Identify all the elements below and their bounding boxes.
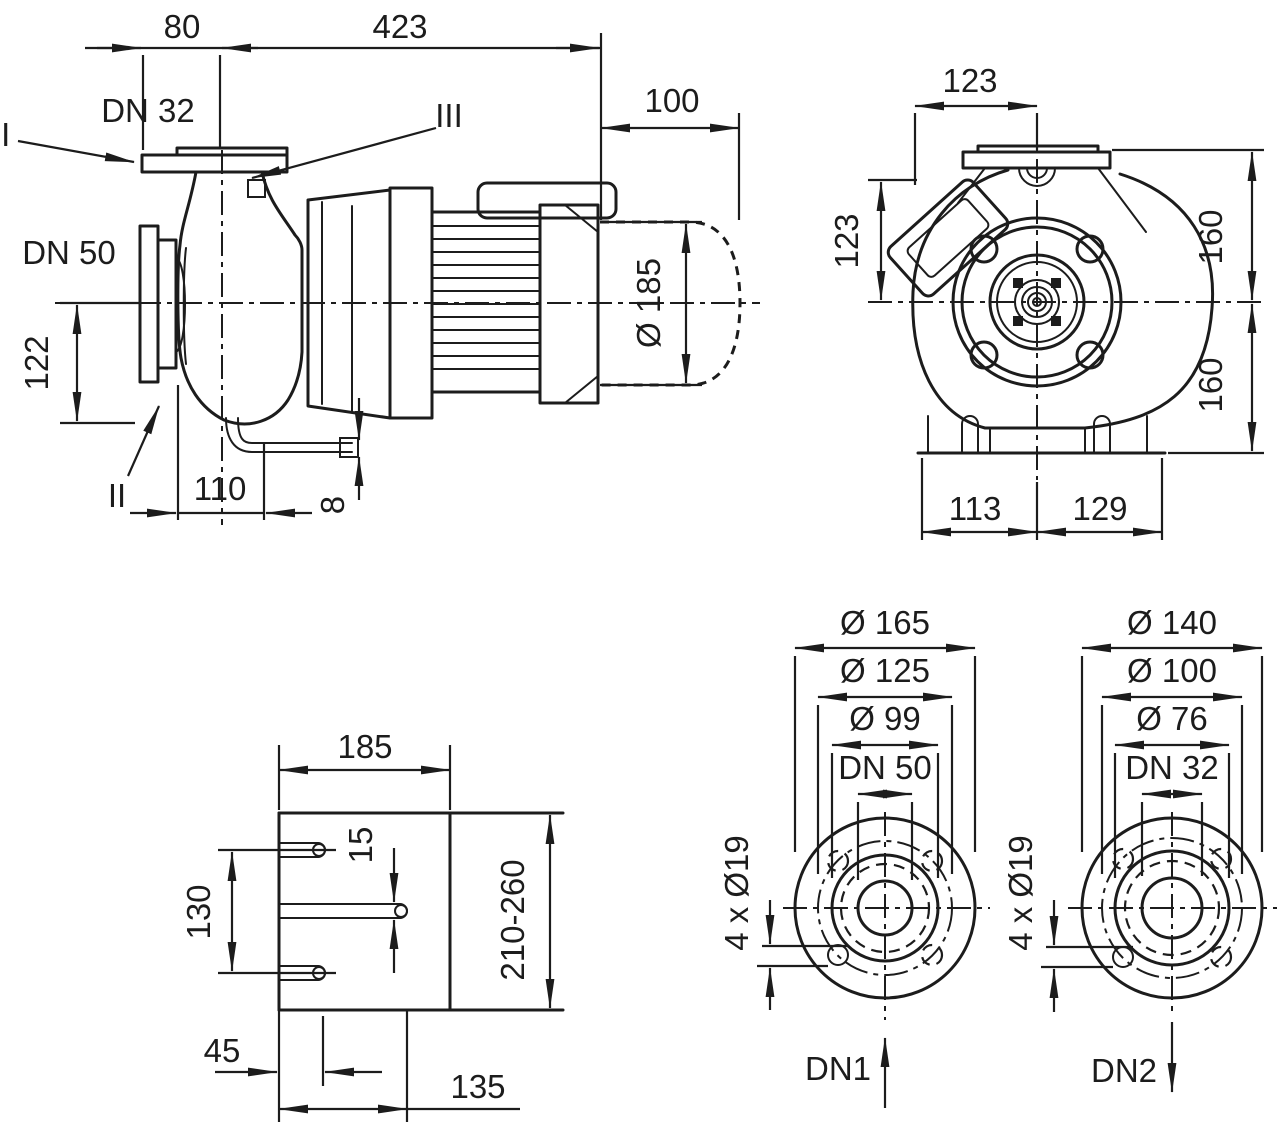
base-plate-view: 185 130 15 210-260 45 135 bbox=[180, 728, 563, 1122]
dim-135: 135 bbox=[450, 1068, 505, 1105]
label-dn1: DN1 bbox=[805, 1050, 871, 1087]
drawing-canvas: 80 423 100 Ø 185 122 110 8 DN 32 DN 50 I… bbox=[0, 0, 1280, 1125]
dim-8: 8 bbox=[314, 496, 351, 514]
key-square-bl bbox=[1013, 316, 1023, 326]
dim-bore-dn32: DN 32 bbox=[1125, 749, 1219, 786]
foot-slot-right bbox=[1094, 416, 1110, 453]
section-marker-bottom: II bbox=[108, 477, 126, 514]
dim-100: 100 bbox=[644, 82, 699, 119]
rear-chamfer-bottom bbox=[565, 376, 598, 403]
vent-plug bbox=[248, 180, 265, 197]
marker-mid-leader bbox=[252, 128, 436, 178]
dim-bore-dn50: DN 50 bbox=[838, 749, 932, 786]
dim-123-width: 123 bbox=[942, 62, 997, 99]
dim-dia-76: Ø 76 bbox=[1136, 700, 1208, 737]
dim-45: 45 bbox=[204, 1032, 241, 1069]
dim-210-260: 210-260 bbox=[494, 859, 531, 980]
flange-view-dn2: Ø 140 Ø 100 Ø 76 DN 32 4 x Ø19 DN2 bbox=[1002, 604, 1277, 1092]
dim-15: 15 bbox=[342, 827, 379, 864]
label-dn2: DN2 bbox=[1091, 1052, 1157, 1089]
front-volute-outline bbox=[913, 170, 1213, 428]
dim-80: 80 bbox=[164, 8, 201, 45]
section-marker-mid: III bbox=[435, 97, 463, 134]
dim-dia-100: Ø 100 bbox=[1127, 652, 1217, 689]
key-square-tr bbox=[1051, 278, 1061, 288]
dim-160-top: 160 bbox=[1192, 209, 1229, 264]
motor-fins bbox=[433, 226, 539, 369]
key-square-br bbox=[1051, 316, 1061, 326]
dim-185: 185 bbox=[337, 728, 392, 765]
dim-holes-dn1: 4 x Ø19 bbox=[718, 835, 755, 951]
marker-left-leader bbox=[18, 141, 134, 162]
drain-fitting bbox=[340, 438, 358, 457]
flange-view-dn1: Ø 165 Ø 125 Ø 99 DN 50 4 x Ø19 DN1 bbox=[718, 604, 990, 1108]
marker-bottom-leader bbox=[128, 406, 159, 476]
pump-dimensional-drawing: 80 423 100 Ø 185 122 110 8 DN 32 DN 50 I… bbox=[0, 0, 1280, 1125]
key-square-tl bbox=[1013, 278, 1023, 288]
dim-130: 130 bbox=[180, 884, 217, 939]
section-marker-left: II bbox=[0, 116, 10, 153]
dim-dia-140: Ø 140 bbox=[1127, 604, 1217, 641]
dim-123-height: 123 bbox=[828, 213, 865, 268]
dim-holes-dn2: 4 x Ø19 bbox=[1002, 835, 1039, 951]
side-view: 80 423 100 Ø 185 122 110 8 DN 32 DN 50 I… bbox=[0, 8, 760, 525]
dim-122: 122 bbox=[18, 335, 55, 390]
dim-dia-99: Ø 99 bbox=[849, 700, 921, 737]
dim-129: 129 bbox=[1072, 490, 1127, 527]
dim-160-bottom: 160 bbox=[1192, 357, 1229, 412]
discharge-flange bbox=[142, 155, 287, 172]
label-dn50: DN 50 bbox=[22, 234, 116, 271]
dim-113: 113 bbox=[949, 490, 1002, 527]
dim-110: 110 bbox=[194, 470, 247, 507]
volute-casing bbox=[178, 172, 302, 424]
dim-dia-185: Ø 185 bbox=[630, 258, 667, 348]
front-view: 123 123 160 160 113 129 bbox=[828, 62, 1264, 540]
label-dn32: DN 32 bbox=[101, 92, 195, 129]
dim-dia-125: Ø 125 bbox=[840, 652, 930, 689]
strut-right bbox=[1098, 168, 1146, 232]
dim-dia-165: Ø 165 bbox=[840, 604, 930, 641]
dim-423: 423 bbox=[372, 8, 427, 45]
